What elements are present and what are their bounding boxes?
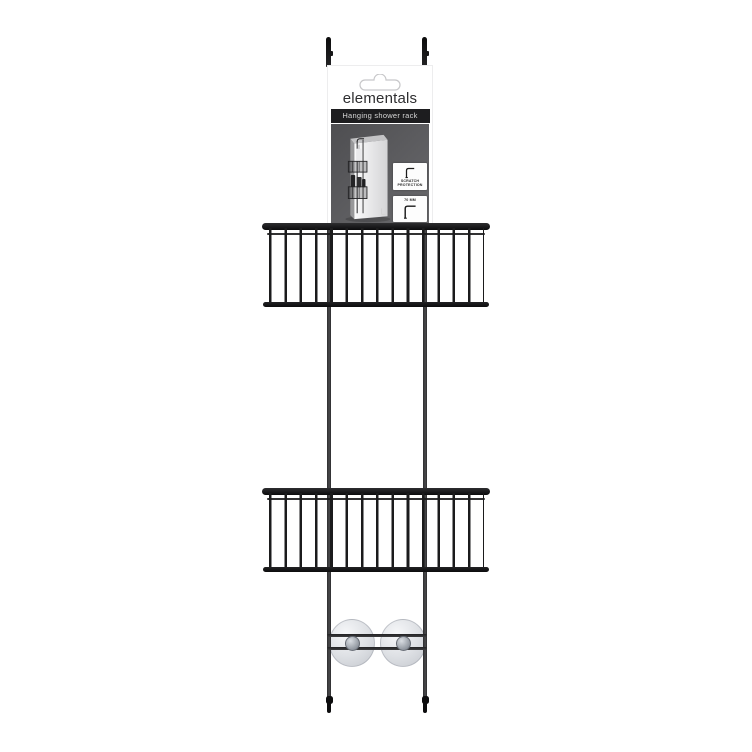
bottom-crossbar-upper xyxy=(327,634,427,637)
product-title-bar: Hanging shower rack xyxy=(331,109,430,123)
basket-wires xyxy=(269,493,484,570)
badge-label: SCRATCH PROTECTION xyxy=(395,179,425,188)
door-hook-icon xyxy=(402,165,418,179)
rail-end-tip-left xyxy=(327,702,332,713)
over-door-hook-left xyxy=(326,37,332,67)
suction-cup-stem-left xyxy=(345,636,360,651)
lifestyle-render xyxy=(334,128,396,226)
hook-clip-icon xyxy=(330,51,333,56)
product-title: Hanging shower rack xyxy=(342,111,417,120)
product-image-hanging-shower-rack: elementals Hanging shower rack xyxy=(0,0,752,752)
basket-wires xyxy=(269,228,484,305)
suction-cup-stem-right xyxy=(396,636,411,651)
packaging-card: elementals Hanging shower rack xyxy=(328,66,432,226)
door-hook-icon xyxy=(401,203,419,219)
badge-scratch-protection: SCRATCH PROTECTION xyxy=(393,163,427,190)
hook-clip-icon xyxy=(426,51,429,56)
basket-bottom-rim xyxy=(263,302,489,308)
bottom-crossbar-lower xyxy=(327,647,427,650)
euro-slot-cutout xyxy=(356,74,404,91)
wire-basket-top xyxy=(262,223,490,307)
badge-door-fit: 70 MM xyxy=(393,196,427,222)
packaging-photo: SCRATCH PROTECTION 70 MM xyxy=(331,124,429,227)
basket-bottom-rim xyxy=(263,567,489,573)
over-door-hook-right xyxy=(422,37,428,67)
wire-basket-bottom xyxy=(262,488,490,572)
rail-end-tip-right xyxy=(423,702,428,713)
brand-logo: elementals xyxy=(328,90,432,107)
